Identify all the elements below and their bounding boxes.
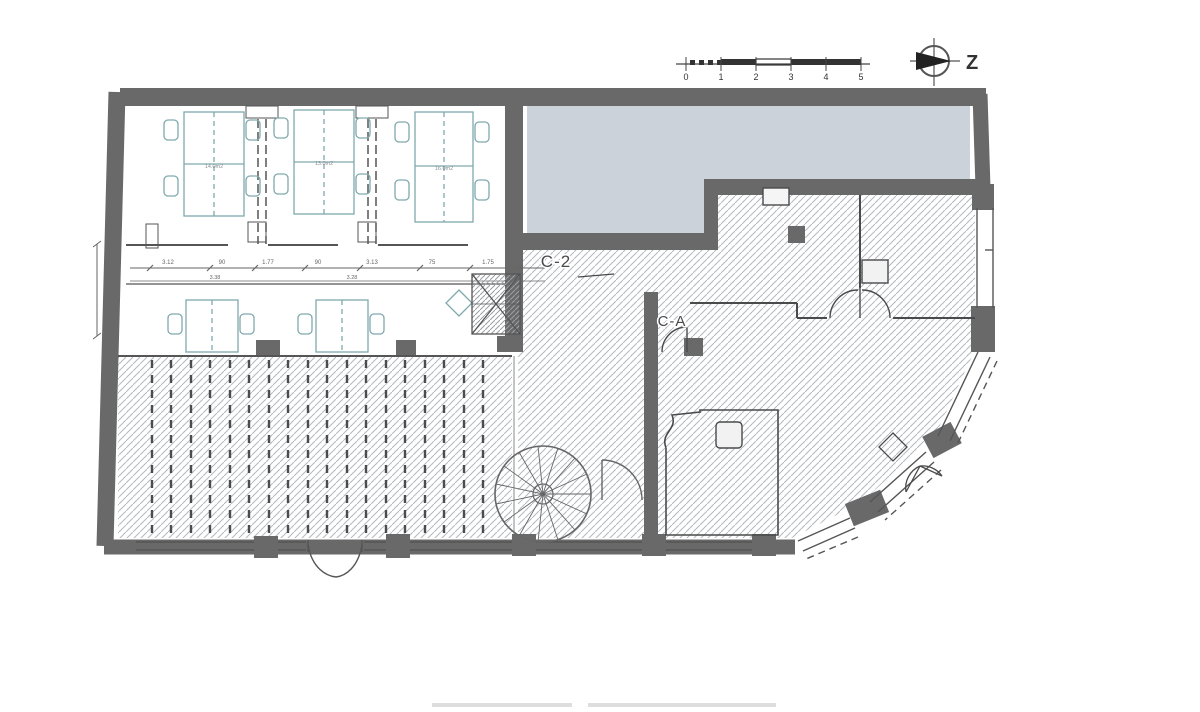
scale-tick-label: 4 <box>823 72 828 82</box>
chair <box>298 314 312 334</box>
chair <box>164 120 178 140</box>
pilaster-2 <box>356 106 388 118</box>
desk-group-mid-2 <box>298 300 384 352</box>
dim-text: 3.28 <box>347 275 358 281</box>
label-c2: C-2 <box>541 252 571 271</box>
scale-tick-label: 3 <box>788 72 793 82</box>
desk-group-mid-1 <box>168 300 254 352</box>
chair <box>395 122 409 142</box>
post-right-lower <box>971 306 995 352</box>
north-compass: Z <box>910 38 978 86</box>
column-rightroom <box>788 226 805 243</box>
dimension-labels: 3.12 90 1.77 90 3.13 75 1.75 3.38 3.28 <box>162 260 494 281</box>
dim-text: 3.12 <box>162 260 174 266</box>
post-bottom-2 <box>386 534 410 558</box>
dim-text: 1.75 <box>482 260 494 266</box>
scanned-floorplan-page: 3.12 90 1.77 90 3.13 75 1.75 3.38 3.28 1… <box>0 0 1200 712</box>
post-midband-1 <box>256 340 280 356</box>
scale-bar: 0 1 2 3 4 5 <box>676 57 870 82</box>
cabinet-1 <box>248 222 266 242</box>
cabinet-2 <box>358 222 376 242</box>
scale-tick-label: 0 <box>683 72 688 82</box>
dim-text: 75 <box>429 260 436 266</box>
scale-tick-label: 5 <box>858 72 863 82</box>
dim-text: 1.77 <box>262 260 274 266</box>
niche-top-right <box>763 188 789 205</box>
hatched-hall-zone <box>118 356 514 538</box>
chair <box>274 174 288 194</box>
wall-left <box>105 92 117 546</box>
hall-floor-hatch <box>118 356 512 538</box>
scale-tick-label: 1 <box>718 72 723 82</box>
corner-double-door <box>906 466 942 492</box>
floorplan-drawing: 3.12 90 1.77 90 3.13 75 1.75 3.38 3.28 1… <box>0 0 1200 712</box>
office-partitions <box>118 106 512 356</box>
diamond-fixture-center <box>446 290 472 316</box>
chair <box>168 314 182 334</box>
post-bottom-1 <box>254 536 278 558</box>
chair <box>475 180 489 200</box>
room-label-1: 14.0m2 <box>205 164 223 170</box>
room-label-3: 16.0m2 <box>435 166 453 172</box>
wall-right-upper <box>980 94 983 188</box>
post-right-upper <box>972 184 994 210</box>
scale-tick-label: 2 <box>753 72 758 82</box>
dim-text: 3.38 <box>210 275 221 281</box>
dim-text: 90 <box>219 260 226 266</box>
post-midband-2 <box>396 340 416 355</box>
pilaster-1 <box>246 106 278 118</box>
fixture-upper-right <box>862 260 888 283</box>
post-bottom-5 <box>752 534 776 556</box>
furniture <box>164 110 489 352</box>
chair <box>164 176 178 196</box>
chair <box>274 118 288 138</box>
dim-text: 3.13 <box>366 260 378 266</box>
dim-text: 90 <box>315 260 322 266</box>
chair <box>240 314 254 334</box>
wall-block-center <box>497 336 523 352</box>
wall-lowerright-room <box>644 292 658 540</box>
scale-numbers: 0 1 2 3 4 5 <box>683 72 863 82</box>
chair <box>475 122 489 142</box>
compass-label: Z <box>966 52 978 74</box>
chair <box>395 180 409 200</box>
label-ca: C-A <box>658 313 687 330</box>
room-label-2: 13.0m2 <box>315 161 333 167</box>
stair-shaft <box>472 274 520 334</box>
chair <box>370 314 384 334</box>
fixture-lowerright-room <box>716 422 742 448</box>
